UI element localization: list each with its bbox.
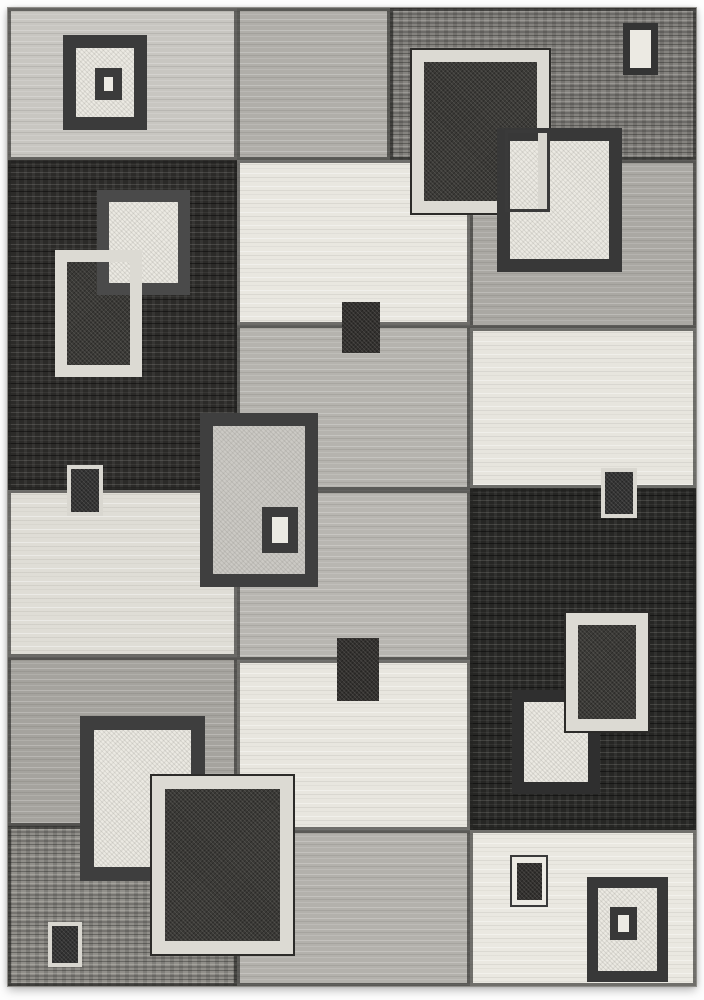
rug-motif-bl-framed-charcoal bbox=[152, 776, 293, 954]
rug-motif-bl-small-framed bbox=[48, 922, 82, 967]
rug-motif-center-grey-square-inner bbox=[262, 507, 298, 553]
rug-block-right-ivory bbox=[470, 328, 696, 488]
rug-motif-br-small-double-core bbox=[517, 863, 542, 900]
rug-motif-left-light-frame bbox=[55, 250, 142, 377]
rug-motif-tr-small-ivory bbox=[623, 23, 658, 75]
rug-motif-tr-thin-outline bbox=[505, 130, 550, 212]
product-photo bbox=[0, 0, 704, 1000]
rug-motif-center-small-charcoal bbox=[342, 302, 380, 353]
rug-motif-center-grey-square bbox=[200, 413, 318, 587]
rug-motif-tl-ivory-square-inner bbox=[95, 68, 122, 100]
rug-motif-br-framed-charcoal bbox=[566, 613, 648, 731]
rug-motif-right-small-framed bbox=[601, 468, 637, 518]
rug-motif-br-square-inner bbox=[610, 907, 637, 940]
rug-motif-left-small-framed bbox=[67, 465, 103, 516]
rug-block-top-mid-grey bbox=[237, 8, 390, 160]
rug-image bbox=[8, 8, 696, 986]
rug-motif-center-small-charcoal-2 bbox=[337, 638, 379, 701]
